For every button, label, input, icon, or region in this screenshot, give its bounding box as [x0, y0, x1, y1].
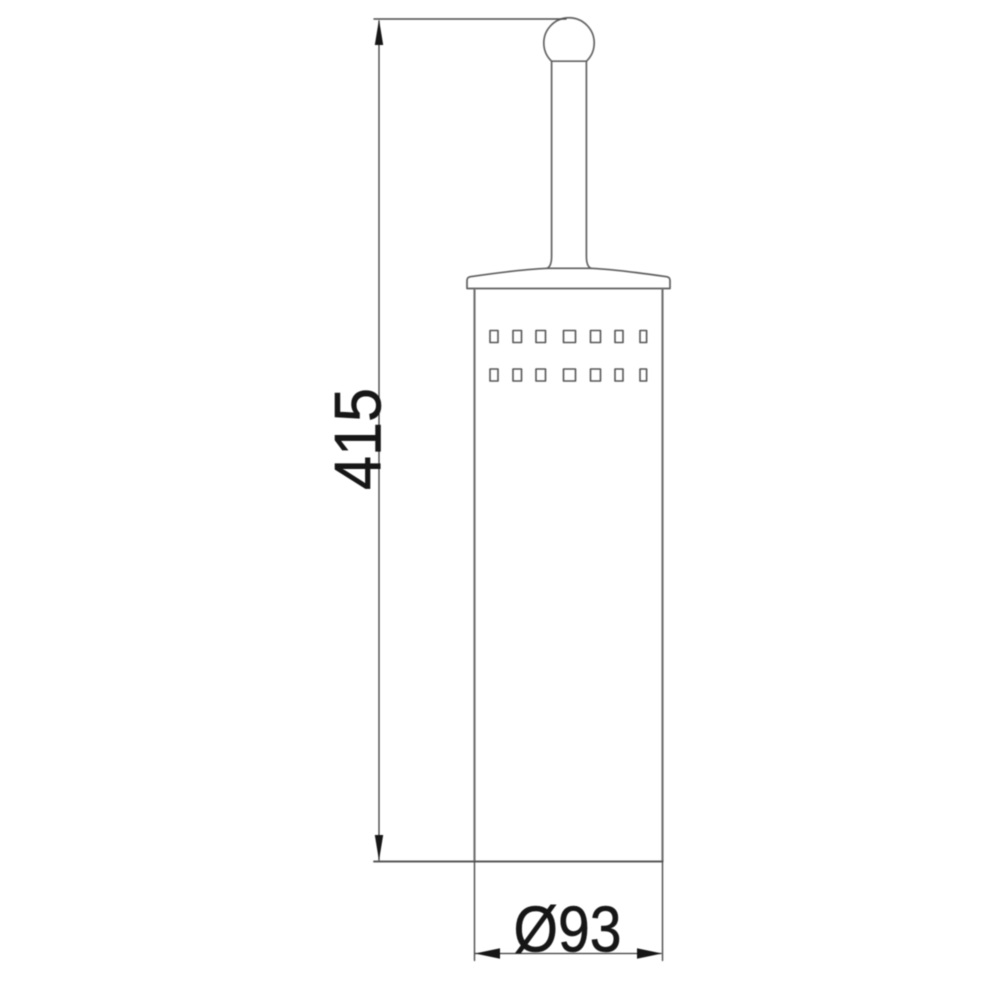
- svg-text:415: 415: [321, 388, 395, 490]
- svg-text:Ø93: Ø93: [514, 893, 622, 966]
